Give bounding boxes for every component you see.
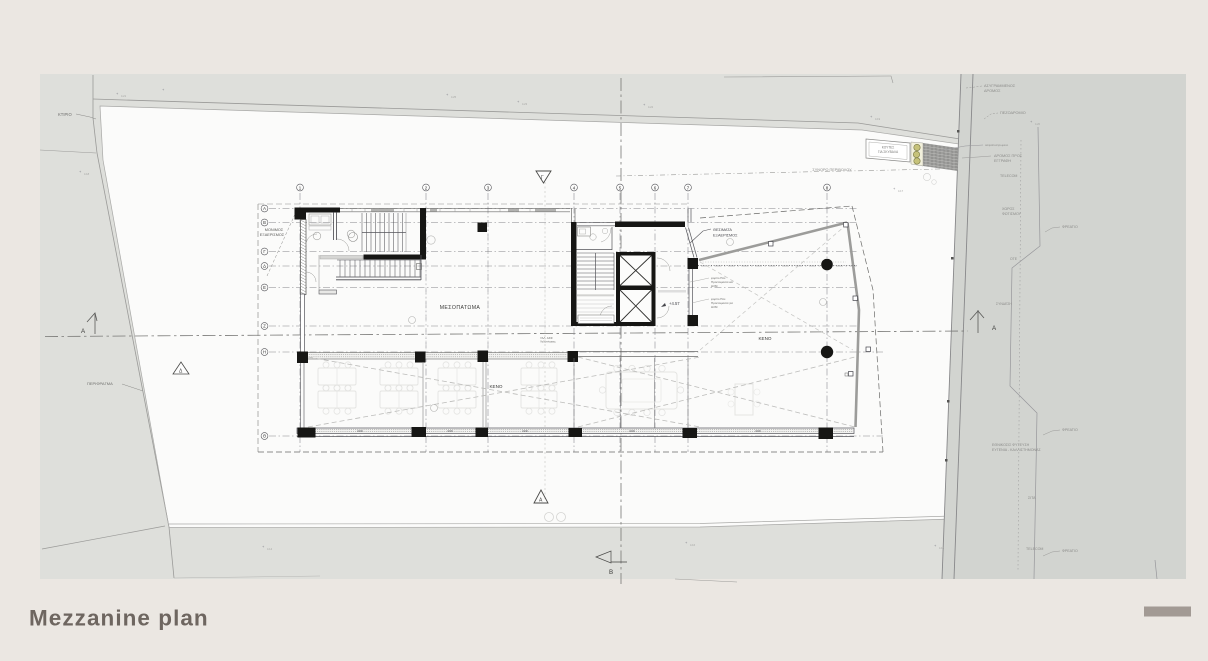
svg-text:4.16: 4.16 <box>690 543 696 547</box>
svg-text:4.17: 4.17 <box>898 189 904 193</box>
svg-text:ΕΓΓΡΑΦΗ: ΕΓΓΡΑΦΗ <box>994 159 1011 163</box>
svg-text:Mezzanine plan: Mezzanine plan <box>29 606 209 631</box>
svg-text:ΦΩΤΙΣΜΟΥ: ΦΩΤΙΣΜΟΥ <box>1002 212 1022 216</box>
svg-text:4.22: 4.22 <box>648 105 654 109</box>
svg-text:H: H <box>263 350 266 355</box>
svg-text:ΧΩΡΟΣ: ΧΩΡΟΣ <box>1002 207 1015 211</box>
svg-text:ΜΕΣΟΠΑΤΩΜΑ: ΜΕΣΟΠΑΤΩΜΑ <box>440 305 481 311</box>
svg-text:E: E <box>263 285 266 290</box>
svg-text:4.23: 4.23 <box>522 102 528 106</box>
svg-text:ΗΛΜ: ΗΛΜ <box>711 305 718 309</box>
svg-text:Υαλοπίνακες: Υαλοπίνακες <box>540 340 556 344</box>
svg-text:ΘΕΣΙΜΑΤΑ: ΘΕΣΙΜΑΤΑ <box>713 228 732 232</box>
svg-text:ΣΥΝΔΕΣΗ: ΣΥΝΔΕΣΗ <box>996 302 1012 306</box>
svg-text:Γ: Γ <box>541 175 544 181</box>
svg-text:ΕΥΓΕΝΙΑ - ΚΑΛΛΙΣΤΗΜΟΝΑΣ: ΕΥΓΕΝΙΑ - ΚΑΛΛΙΣΤΗΜΟΝΑΣ <box>992 448 1042 452</box>
svg-text:ΓΙΑ ΣΚΥΒΑΛΑ: ΓΙΑ ΣΚΥΒΑΛΑ <box>878 150 899 154</box>
svg-text:ΚΤΙΡΙΟ: ΚΤΙΡΙΟ <box>58 112 72 117</box>
svg-text:4.20: 4.20 <box>1035 122 1041 126</box>
svg-text:ΔΡΟΜΟΣ ΠΡΟΣ: ΔΡΟΜΟΣ ΠΡΟΣ <box>994 154 1023 158</box>
svg-text:3400: 3400 <box>447 429 453 433</box>
svg-text:ΦΡΕΑΤΙΟ: ΦΡΕΑΤΙΟ <box>1062 549 1078 553</box>
svg-text:4.15: 4.15 <box>939 546 945 550</box>
svg-text:ΟΤΕ: ΟΤΕ <box>1010 257 1018 261</box>
svg-text:ΑΣΥΓΡΑΜΜΕΝΟΣ: ΑΣΥΓΡΑΜΜΕΝΟΣ <box>984 84 1016 88</box>
svg-text:ΦΡΕΑΤΙΟ: ΦΡΕΑΤΙΟ <box>1062 225 1078 229</box>
svg-text:ασφαλτοστρωμενο: ασφαλτοστρωμενο <box>985 143 1009 147</box>
svg-text:3400: 3400 <box>629 429 635 433</box>
svg-text:A: A <box>263 206 266 211</box>
svg-text:ΦΡΕΑΤΙΟ: ΦΡΕΑΤΙΟ <box>1062 428 1078 432</box>
svg-text:4.14: 4.14 <box>267 547 273 551</box>
svg-text:4.19: 4.19 <box>875 117 881 121</box>
svg-text:ΚΕΝΟ: ΚΕΝΟ <box>489 384 502 389</box>
svg-text:ΚΟΥΤΕΣ: ΚΟΥΤΕΣ <box>882 146 895 150</box>
svg-text:3400: 3400 <box>522 429 528 433</box>
svg-text:Z: Z <box>263 324 266 329</box>
svg-text:4.21: 4.21 <box>121 94 127 98</box>
svg-text:ΜΟΝΙΜΟΣ: ΜΟΝΙΜΟΣ <box>265 228 284 232</box>
svg-text:B: B <box>263 220 266 225</box>
svg-text:+4.57: +4.57 <box>669 301 680 306</box>
svg-text:3400: 3400 <box>357 429 363 433</box>
svg-text:4.18: 4.18 <box>84 172 90 176</box>
svg-text:3400: 3400 <box>755 429 761 433</box>
svg-text:TELECOM: TELECOM <box>1000 174 1017 178</box>
svg-text:ΕΘΝΙΚΟΣΙΣ ΦΥΤΕΥΣΗ: ΕΘΝΙΚΟΣΙΣ ΦΥΤΕΥΣΗ <box>992 443 1030 447</box>
svg-text:4.25: 4.25 <box>451 95 457 99</box>
svg-text:ΔΡΟΜΟΣ: ΔΡΟΜΟΣ <box>984 89 1001 93</box>
svg-text:Δ: Δ <box>263 264 266 269</box>
svg-text:ΠΕΖΟΔΡΟΜΙΟ: ΠΕΖΟΔΡΟΜΙΟ <box>1000 111 1026 115</box>
svg-text:ΕΞΑΕΡΙΣΜΟΣ: ΕΞΑΕΡΙΣΜΟΣ <box>260 233 285 237</box>
svg-text:ΚΕΝΟ: ΚΕΝΟ <box>758 336 771 341</box>
svg-text:ΠΕΡΙΦΡΑΓΜΑ: ΠΕΡΙΦΡΑΓΜΑ <box>87 381 113 386</box>
svg-text:ΣΙΤΑ: ΣΙΤΑ <box>1028 496 1036 500</box>
svg-text:TELECOM: TELECOM <box>1026 547 1043 551</box>
svg-text:ΕΞΑΕΡΙΣΜΟΣ: ΕΞΑΕΡΙΣΜΟΣ <box>713 234 738 238</box>
svg-text:ΣΥΝΟΡΟ ΠΕΡΙΒΟΛΟΥ: ΣΥΝΟΡΟ ΠΕΡΙΒΟΛΟΥ <box>812 168 852 172</box>
svg-text:ΗΛΜ: ΗΛΜ <box>711 284 718 288</box>
svg-text:B: B <box>609 569 613 576</box>
